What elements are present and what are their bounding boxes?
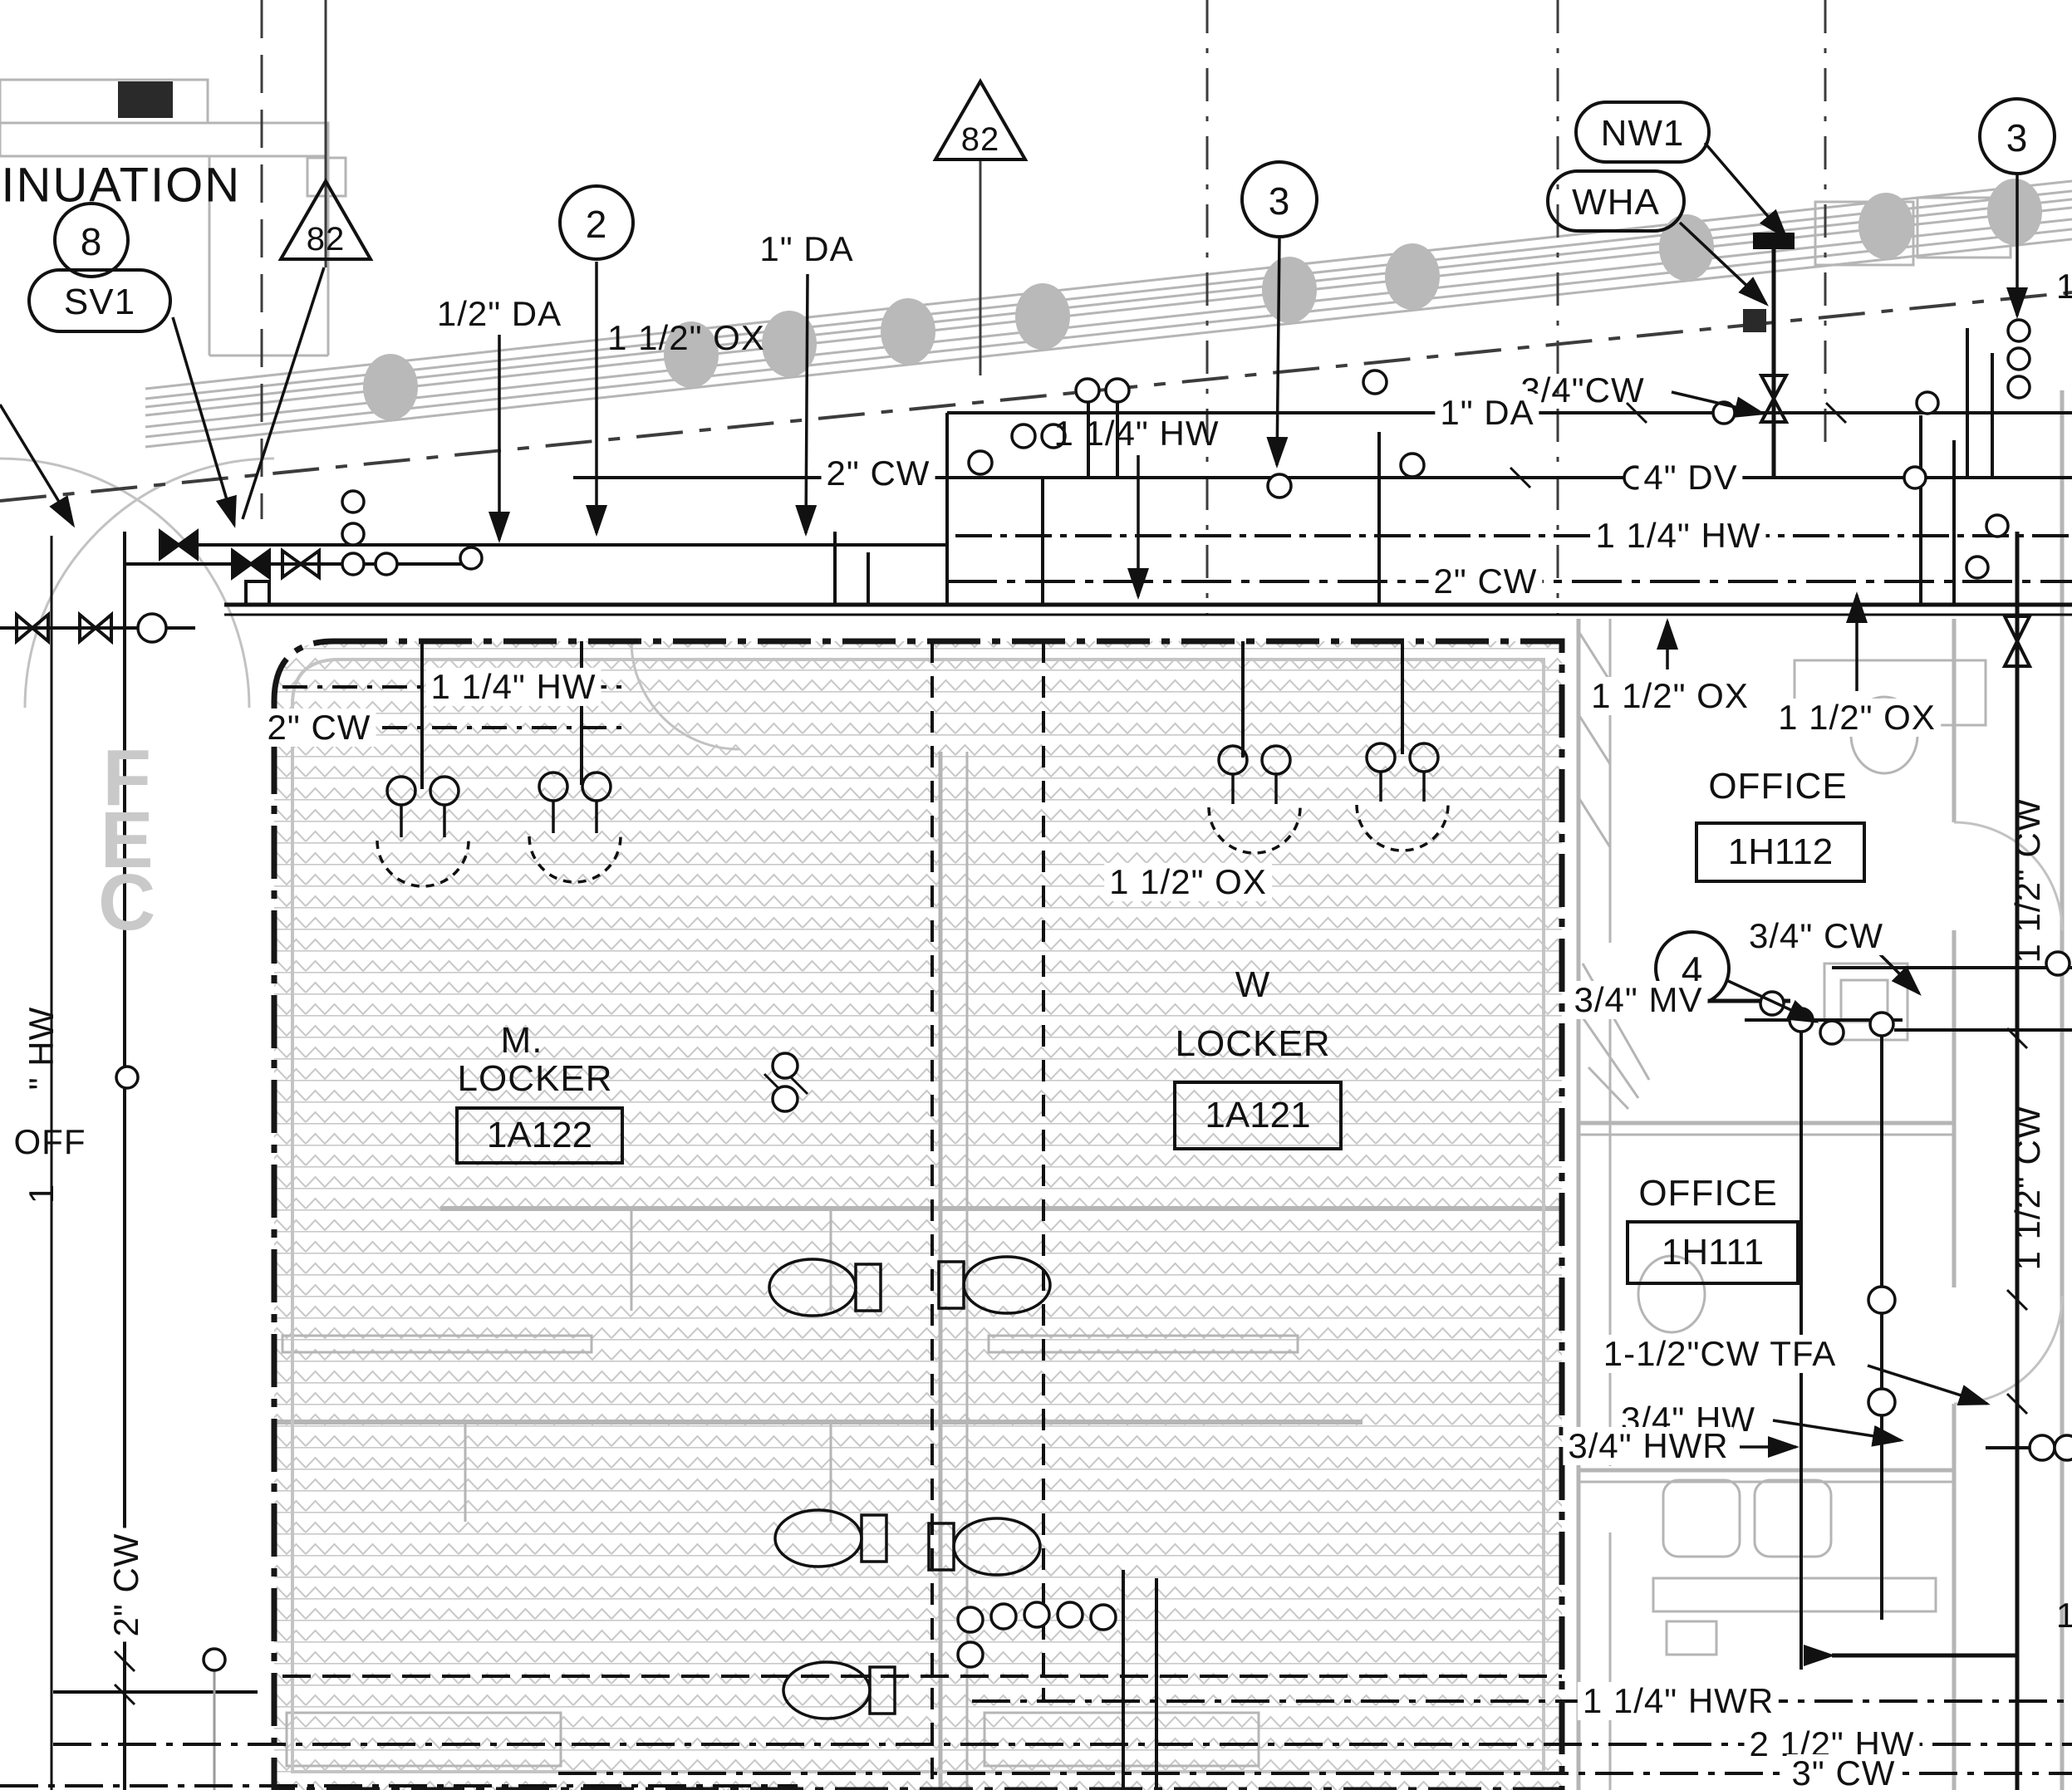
- callout-8: 8: [81, 222, 103, 262]
- callout-3a: 3: [1269, 181, 1291, 221]
- pipe-label-4dv: 4" DV: [1638, 459, 1742, 497]
- pipe-label-hwr114: 1 1/4" HWR: [1578, 1682, 1779, 1720]
- room-office-1h112-number: 1H112: [1695, 821, 1866, 883]
- room-office-1h111-number: 1H111: [1626, 1220, 1799, 1285]
- plan-linework: [0, 0, 2072, 1790]
- floor-plan-sheet: ITINUATION 8 2 3 3 4 82 82 SV1 NW1 WHA 1…: [0, 0, 2072, 1790]
- callout-2: 2: [586, 204, 608, 244]
- keynote-triangle-82-top: 82: [961, 122, 1000, 157]
- pipe-label-half-da: 1/2" DA: [437, 296, 562, 332]
- column-blobs: [118, 81, 2042, 420]
- continuation-text: ITINUATION: [0, 161, 241, 212]
- left-edge-1-label: 1: [23, 1184, 60, 1204]
- pipe-label-cw112-vert-1: 1 1/2" CW: [2010, 798, 2046, 964]
- left-edge-hw-label: " HW: [23, 1007, 60, 1091]
- room-w-locker-number: 1A121: [1173, 1081, 1343, 1150]
- pipe-label-ox-right-1: 1 1/2" OX: [1586, 677, 1754, 715]
- pipe-label-ox-top: 1 1/2" OX: [607, 320, 765, 356]
- room-w-locker-line1: W: [1235, 966, 1271, 1004]
- callout-3b: 3: [2006, 118, 2029, 158]
- fec-marker: F E C: [98, 748, 155, 934]
- pipe-label-ox-mid: 1 1/2" OX: [1104, 863, 1272, 901]
- left-edge-off-label: OFF: [14, 1124, 86, 1160]
- pipe-label-1da-line: 1" DA: [1435, 394, 1539, 432]
- fec-letter-c: C: [98, 872, 155, 934]
- pipe-label-2cw-line: 2" CW: [1429, 562, 1543, 601]
- tag-nw1: NW1: [1601, 115, 1685, 153]
- locker-suite-hatch: [274, 641, 1562, 1790]
- room-m-locker-line2: LOCKER: [458, 1060, 613, 1098]
- pipe-label-2cw-left-vert: 2" CW: [107, 1528, 145, 1642]
- room-office-1h111-name: OFFICE: [1638, 1175, 1777, 1213]
- keynote-triangle-82-left: 82: [307, 222, 346, 257]
- pipe-label-cw112-vert-2: 1 1/2" CW: [2010, 1106, 2046, 1271]
- room-w-locker-line2: LOCKER: [1176, 1025, 1331, 1063]
- curtainwall-band: [145, 181, 2072, 447]
- pipe-label-34cw-mid: 3/4" CW: [1744, 917, 1888, 955]
- room-m-locker-number: 1A122: [455, 1106, 624, 1165]
- pipe-label-34mv: 3/4" MV: [1569, 981, 1708, 1019]
- right-edge-label-bottom: 1: [2056, 1597, 2072, 1634]
- pipe-label-hw114-locker: 1 1/4" HW: [426, 668, 601, 706]
- right-edge-label-top: 1: [2056, 268, 2072, 305]
- pipe-label-34hwr: 3/4" HWR: [1563, 1427, 1733, 1465]
- pipe-label-2cw-top: 2" CW: [822, 454, 935, 493]
- room-office-1h112-name: OFFICE: [1708, 767, 1847, 806]
- pipe-label-34cw-top: 3/4"CW: [1520, 372, 1644, 409]
- pipe-label-ox-right-2: 1 1/2" OX: [1773, 699, 1941, 737]
- pipe-label-hw114-top: 1 1/4" HW: [1054, 415, 1220, 452]
- pipe-label-2cw-locker: 2" CW: [263, 709, 376, 747]
- pipe-label-cw-tfa: 1-1/2"CW TFA: [1598, 1335, 1842, 1373]
- tag-wha: WHA: [1572, 184, 1660, 222]
- tag-sv1: SV1: [64, 283, 135, 321]
- pipe-label-hw114-line: 1 1/4" HW: [1591, 517, 1766, 555]
- room-m-locker-line1: M.: [501, 1022, 543, 1060]
- pipe-label-1da-top: 1" DA: [759, 231, 853, 267]
- pipe-label-3cw: 3" CW: [1787, 1754, 1901, 1790]
